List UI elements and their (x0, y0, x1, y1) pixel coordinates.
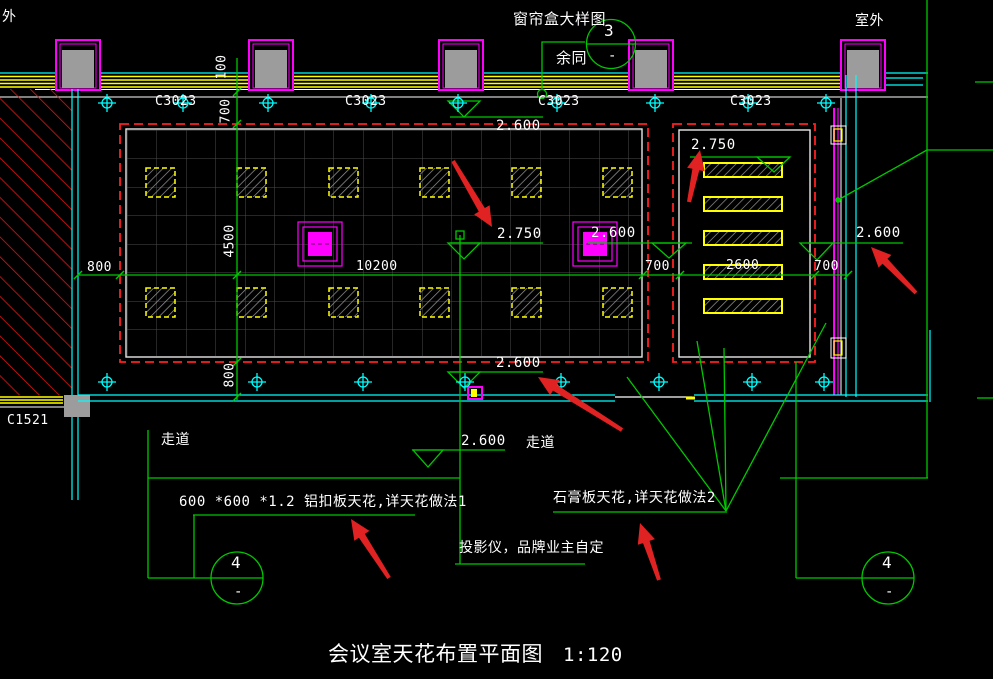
detail-callout-note: 余同 (556, 51, 587, 66)
light-panel (603, 168, 632, 197)
light-panel (512, 168, 541, 197)
ceiling-plan-drawing: 外 室外 窗帘盒大样图 3 - 余同 C3023 C3023 C3023 C30… (0, 0, 993, 679)
label-corridor-left: 走道 (161, 433, 190, 447)
left-wall-hatched (0, 89, 78, 500)
detail-callout-number: 3 (604, 23, 614, 39)
section-right-number: 4 (882, 555, 892, 571)
cove-light-bar (704, 299, 782, 313)
elevation-at-fixture: 2.600 (591, 226, 636, 240)
window-label-4: C3023 (730, 95, 772, 108)
elevation-marker-corridor (412, 450, 505, 467)
wall-column (249, 40, 293, 90)
gypsum-light-coves (704, 163, 782, 313)
centerline-marker (456, 373, 474, 391)
annotation-arrow (351, 519, 391, 579)
centerline-marker (354, 373, 372, 391)
label-outdoor-right: 室外 (855, 14, 884, 28)
dim-4500-vertical: 4500 (224, 224, 237, 257)
detail-callout-title: 窗帘盒大样图 (513, 12, 606, 27)
note-projector: 投影仪，品牌业主自定 (459, 541, 604, 555)
detail-callout-sheet: - (608, 49, 617, 63)
centerline-marker (743, 373, 761, 391)
section-right-sheet: - (885, 585, 894, 599)
dim-700-a: 700 (645, 260, 670, 273)
drawing-scale: 1:120 (563, 646, 623, 665)
main-ceiling-room (120, 124, 648, 362)
drawing-linework (0, 0, 993, 679)
dim-700-vertical: 700 (220, 99, 233, 124)
annotation-arrow (538, 377, 623, 432)
wall-column (56, 40, 100, 90)
centerline-marker (98, 373, 116, 391)
top-wall-columns (56, 40, 885, 90)
window-label-1: C3023 (155, 95, 197, 108)
bottom-left-column (64, 395, 90, 417)
elevation-right-room: 2.750 (691, 138, 736, 152)
cove-light-bar (704, 197, 782, 211)
light-panel (603, 288, 632, 317)
light-panel (237, 288, 266, 317)
dim-800-vertical: 800 (224, 363, 237, 388)
section-left-number: 4 (231, 555, 241, 571)
light-panel (420, 168, 449, 197)
light-panel (237, 168, 266, 197)
light-panel (146, 288, 175, 317)
note-gypsum-ceiling: 石膏板天花,详天花做法2 (553, 491, 716, 505)
ceiling-grid-600 (127, 130, 641, 356)
cove-light-bar (704, 231, 782, 245)
light-panel (329, 168, 358, 197)
dim-700-b: 700 (814, 260, 839, 273)
projector-symbol (468, 387, 482, 399)
dim-2600: 2600 (726, 259, 759, 272)
annotation-arrow (871, 247, 917, 294)
elevation-main-bottom: 2.600 (496, 356, 541, 370)
dim-800-left: 800 (87, 261, 112, 274)
drawing-title: 会议室天花布置平面图 (328, 644, 543, 665)
label-door-c1521: C1521 (7, 414, 49, 427)
window-label-2: C3023 (345, 95, 387, 108)
elevation-right-wall: 2.600 (856, 226, 901, 240)
window-label-3: C3023 (538, 95, 580, 108)
section-left-sheet: - (234, 585, 243, 599)
annotation-arrow (638, 523, 661, 581)
right-window-wall (831, 75, 856, 397)
note-aluminum-ceiling: 600 *600 *1.2 铝扣板天花,详天花做法1 (179, 495, 467, 509)
elevation-center: 2.750 (497, 227, 542, 241)
centerline-marker (248, 373, 266, 391)
light-panel (329, 288, 358, 317)
centerline-marker (815, 373, 833, 391)
wall-column (439, 40, 483, 90)
dim-100-vertical: 100 (216, 55, 229, 80)
label-corridor-right: 走道 (526, 436, 555, 450)
light-panel (420, 288, 449, 317)
elevation-corridor: 2.600 (461, 434, 506, 448)
label-outdoor-left: 外 (2, 10, 17, 24)
wall-column (841, 40, 885, 90)
centerline-marker (650, 373, 668, 391)
elevation-top-center: 2.600 (496, 119, 541, 133)
annotation-arrow (687, 150, 705, 202)
light-panel (512, 288, 541, 317)
light-panel (146, 168, 175, 197)
window-wall-leader (838, 150, 927, 200)
cove-light-bar (704, 163, 782, 177)
dim-10200: 10200 (356, 260, 398, 273)
